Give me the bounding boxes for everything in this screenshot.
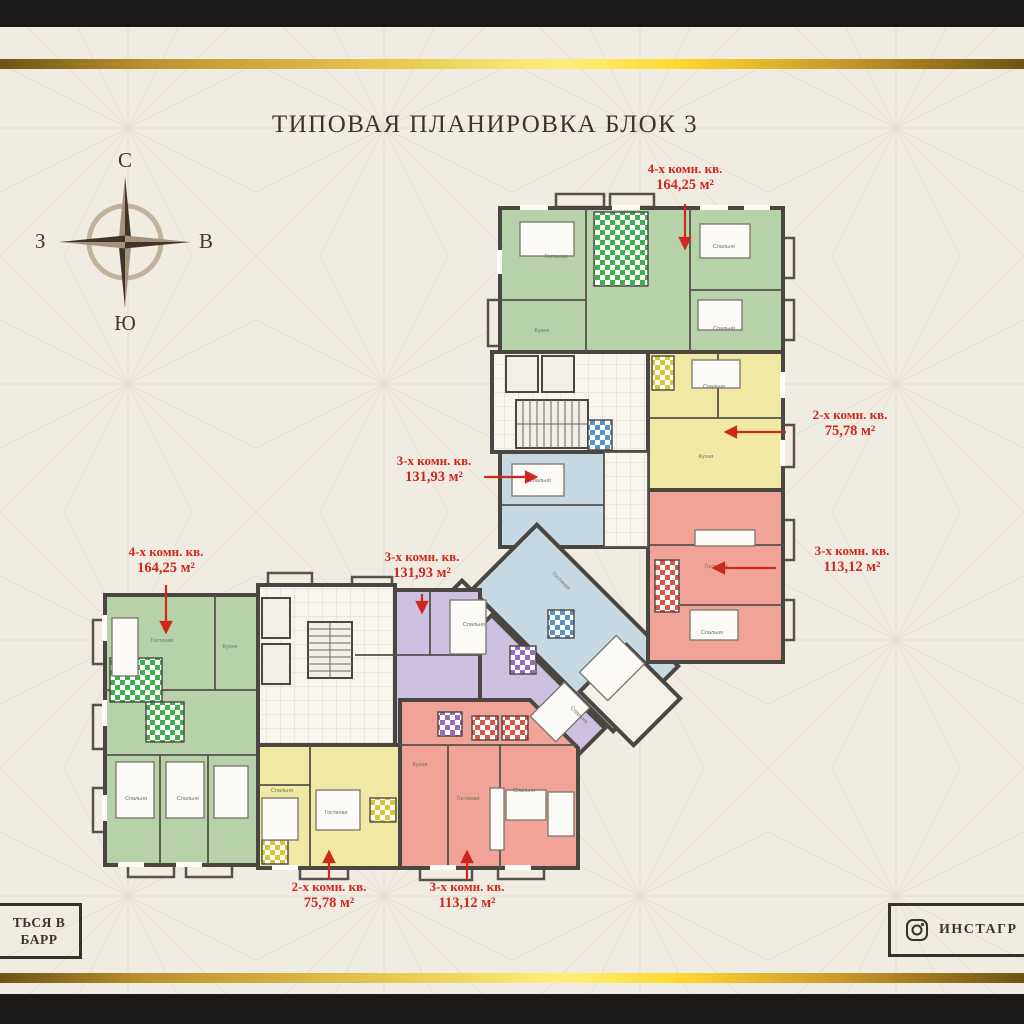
footer-instagram-text: ИНСТАГР: [939, 922, 1018, 938]
apartment-annotation-3room-bottom: 3-х комн. кв. 113,12 м²: [390, 878, 544, 912]
floor-plan: Гостиная Спальня Спальня Кухня Спальня К…: [0, 0, 1024, 1024]
room-name: Спальня: [463, 622, 485, 628]
elevator: [542, 356, 574, 392]
apartment-annotation-4room-left: 4-х комн. кв. 164,25 м²: [88, 543, 244, 577]
footer-instagram-badge: ИНСТАГР: [888, 903, 1024, 957]
footer-left-line1: ТЬСЯ В: [13, 914, 65, 931]
footer-left-badge: ТЬСЯ В БАРР: [0, 903, 82, 959]
elevator: [262, 598, 290, 638]
instagram-icon: [905, 918, 929, 942]
footer-left-line2: БАРР: [13, 931, 65, 948]
room-name: Кухня: [535, 328, 550, 334]
room-name: Спальня: [703, 384, 725, 390]
room-name: Гостиная: [544, 254, 567, 260]
room-name: Гостиная: [456, 796, 479, 802]
room-name: Спальня: [177, 796, 199, 802]
room-name: Кухня: [699, 454, 714, 460]
apartment-annotation-2room-bottom: 2-х комн. кв. 75,78 м²: [252, 878, 406, 912]
apartment-annotation-3room-purple: 3-х комн. кв. 131,93 м²: [352, 548, 492, 582]
room-name: Спальня: [271, 788, 293, 794]
elevator: [262, 644, 290, 684]
room-name: Спальня: [701, 630, 723, 636]
apartment-annotation-4room-top: 4-х комн. кв. 164,25 м²: [607, 160, 763, 194]
apartment-annotation-3room-blue: 3-х комн. кв. 131,93 м²: [378, 452, 490, 486]
apartment-blocks: [105, 208, 783, 868]
room-name: Гостиная: [150, 638, 173, 644]
apartment-annotation-3room-right: 3-х комн. кв. 113,12 м²: [772, 542, 932, 576]
room-name: Спальня: [125, 796, 147, 802]
room-name: Спальня: [513, 788, 535, 794]
flyer-page: ТИПОВАЯ ПЛАНИРОВКА БЛОК 3 С Ю З В: [0, 0, 1024, 1024]
room-name: Спальня: [713, 244, 735, 250]
room-name: Кухня: [223, 644, 238, 650]
room-name: Кухня: [413, 762, 428, 768]
room-name: Спальня: [713, 326, 735, 332]
room-name: Гостиная: [324, 810, 347, 816]
apartment-annotation-2room-right: 2-х комн. кв. 75,78 м²: [770, 406, 930, 440]
elevator: [506, 356, 538, 392]
